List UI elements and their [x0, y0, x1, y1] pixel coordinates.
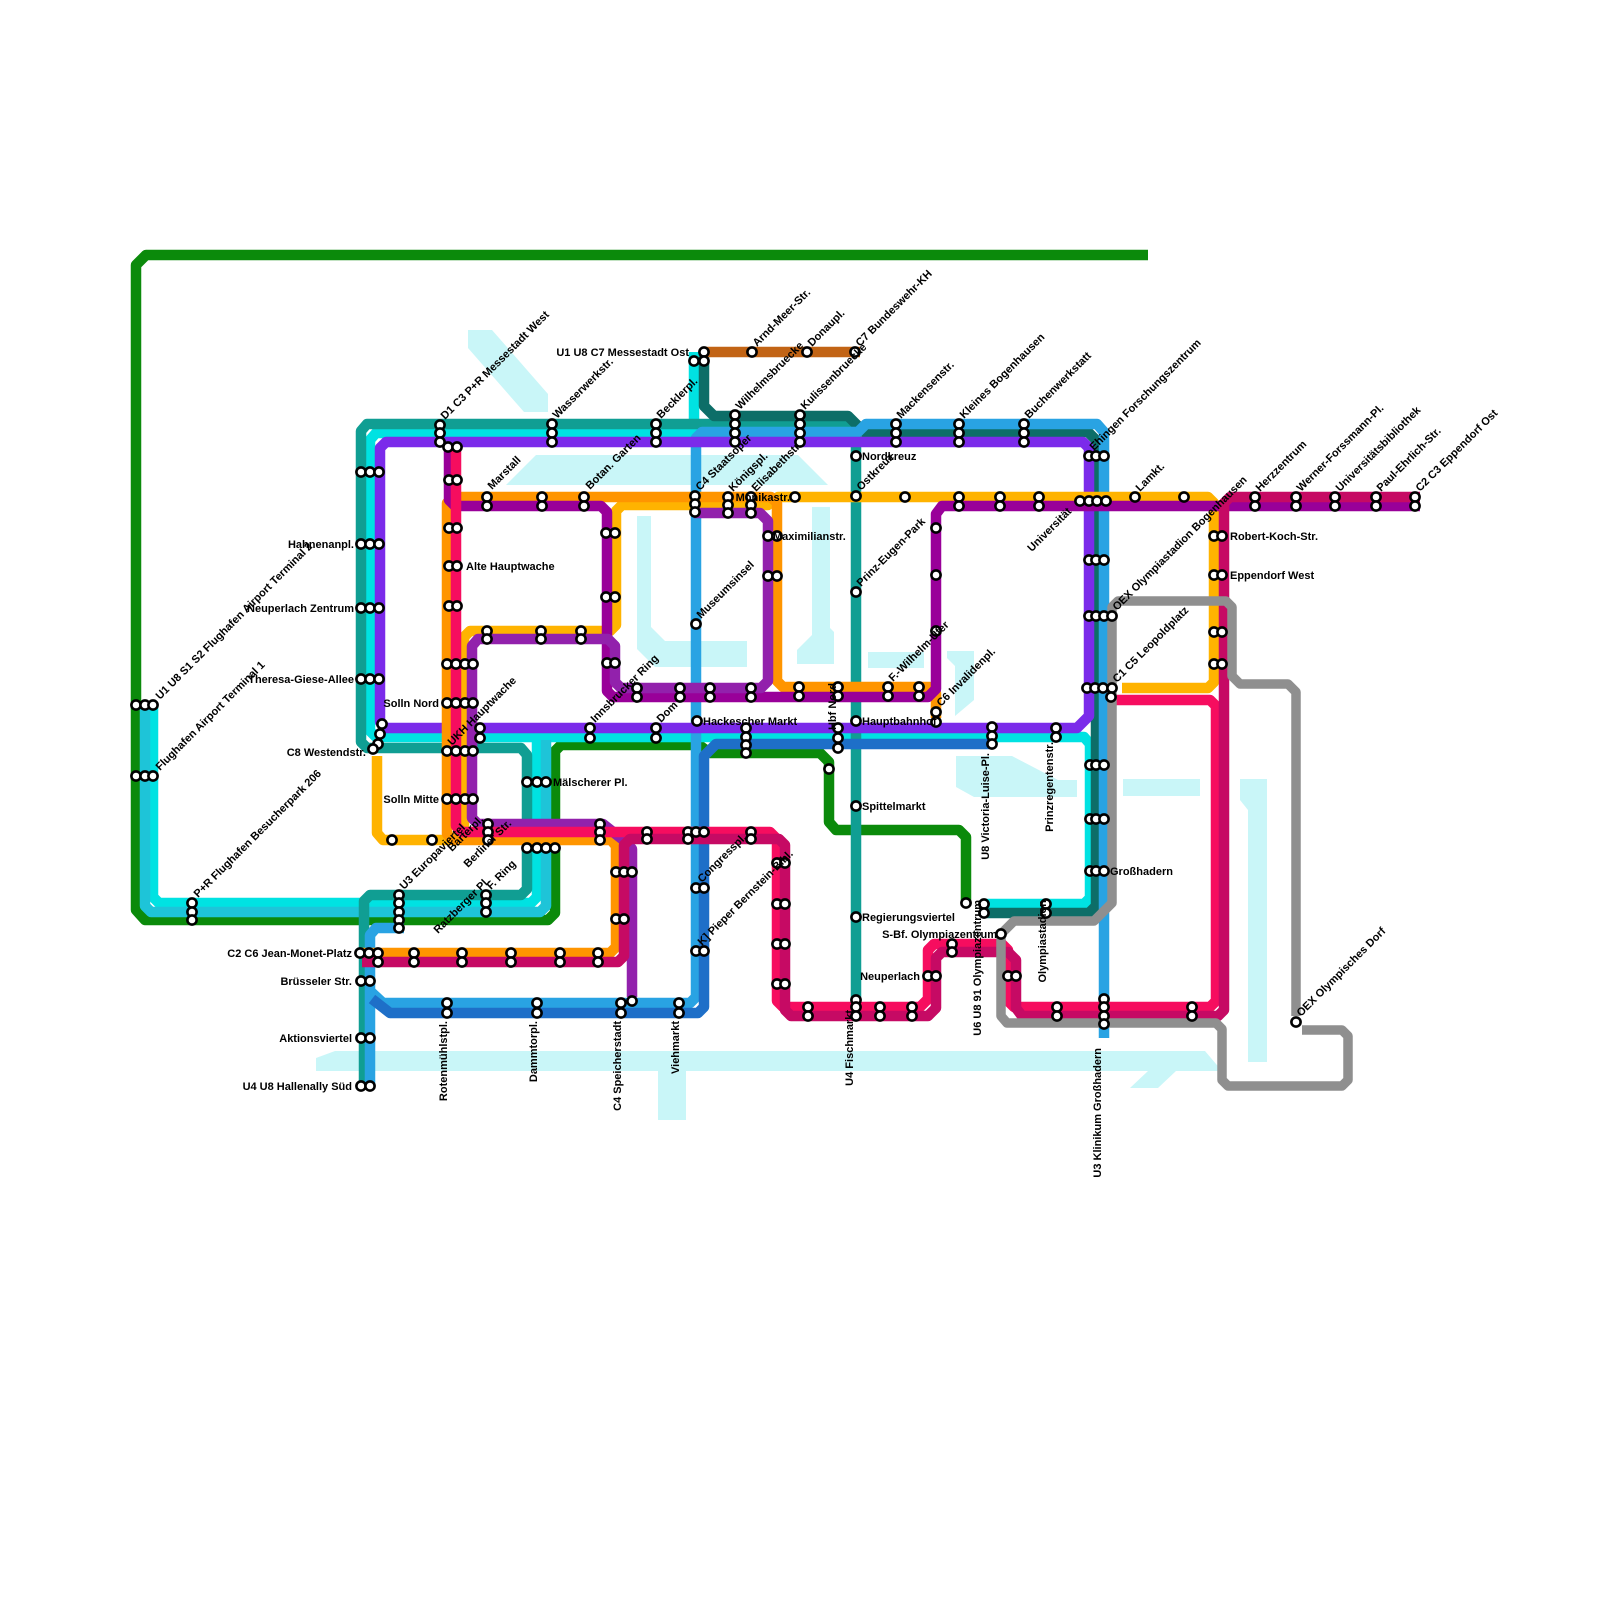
svg-text:Viehmarkt: Viehmarkt: [670, 1021, 682, 1074]
svg-text:Hahnenanpl.: Hahnenanpl.: [288, 539, 354, 551]
svg-text:Dammtorpl.: Dammtorpl.: [528, 1021, 540, 1082]
svg-text:Hauptbahnhof: Hauptbahnhof: [862, 716, 937, 728]
svg-text:U3 Klinikum Großhadern: U3 Klinikum Großhadern: [1092, 1048, 1104, 1178]
svg-text:Spittelmarkt: Spittelmarkt: [862, 801, 926, 813]
svg-text:Neuperlach: Neuperlach: [860, 971, 920, 983]
svg-text:U4 U8 Hallenally Süd: U4 U8 Hallenally Süd: [243, 1081, 352, 1093]
svg-text:Regierungsviertel: Regierungsviertel: [862, 912, 955, 924]
svg-text:Monikastr.: Monikastr.: [736, 492, 790, 504]
svg-text:Hbf Nord: Hbf Nord: [827, 683, 839, 730]
svg-text:Solln Nord: Solln Nord: [383, 698, 439, 710]
svg-text:Alte Hauptwache: Alte Hauptwache: [466, 561, 555, 573]
svg-text:Solln Mitte: Solln Mitte: [383, 794, 439, 806]
svg-text:C4 Speicherstadt: C4 Speicherstadt: [612, 1021, 624, 1111]
svg-text:U1 U8 C7 Messestadt Ost: U1 U8 C7 Messestadt Ost: [556, 347, 689, 359]
svg-text:Eppendorf West: Eppendorf West: [1230, 570, 1314, 582]
svg-text:Olympiastadion: Olympiastadion: [1037, 900, 1049, 983]
svg-text:S-Bf. Olympiazentrum: S-Bf. Olympiazentrum: [882, 929, 997, 941]
svg-text:Robert-Koch-Str.: Robert-Koch-Str.: [1230, 531, 1318, 543]
svg-text:Aktionsviertel: Aktionsviertel: [279, 1033, 352, 1045]
svg-text:Hackescher Markt: Hackescher Markt: [703, 716, 798, 728]
svg-text:Großhadern: Großhadern: [1110, 866, 1173, 878]
svg-text:Brüsseler Str.: Brüsseler Str.: [280, 976, 352, 988]
svg-text:Rotenmühlstpl.: Rotenmühlstpl.: [438, 1021, 450, 1101]
svg-text:Neuperlach Zentrum: Neuperlach Zentrum: [247, 603, 354, 615]
svg-text:Theresa-Giese-Allee: Theresa-Giese-Allee: [248, 674, 354, 686]
svg-text:U8 Victoria-Luise-Pl.: U8 Victoria-Luise-Pl.: [980, 753, 992, 860]
svg-text:C2 C6 Jean-Monet-Platz: C2 C6 Jean-Monet-Platz: [227, 948, 352, 960]
svg-text:Mälscherer Pl.: Mälscherer Pl.: [553, 777, 628, 789]
svg-text:Maximilianstr.: Maximilianstr.: [773, 531, 846, 543]
svg-text:Prinzregentenstr.: Prinzregentenstr.: [1044, 742, 1056, 832]
svg-text:C8 Westendstr.: C8 Westendstr.: [287, 747, 366, 759]
svg-text:U4 Fischmarkt: U4 Fischmarkt: [844, 1010, 856, 1086]
svg-text:U6 U8 91 Olympiazentrum: U6 U8 91 Olympiazentrum: [972, 900, 984, 1036]
